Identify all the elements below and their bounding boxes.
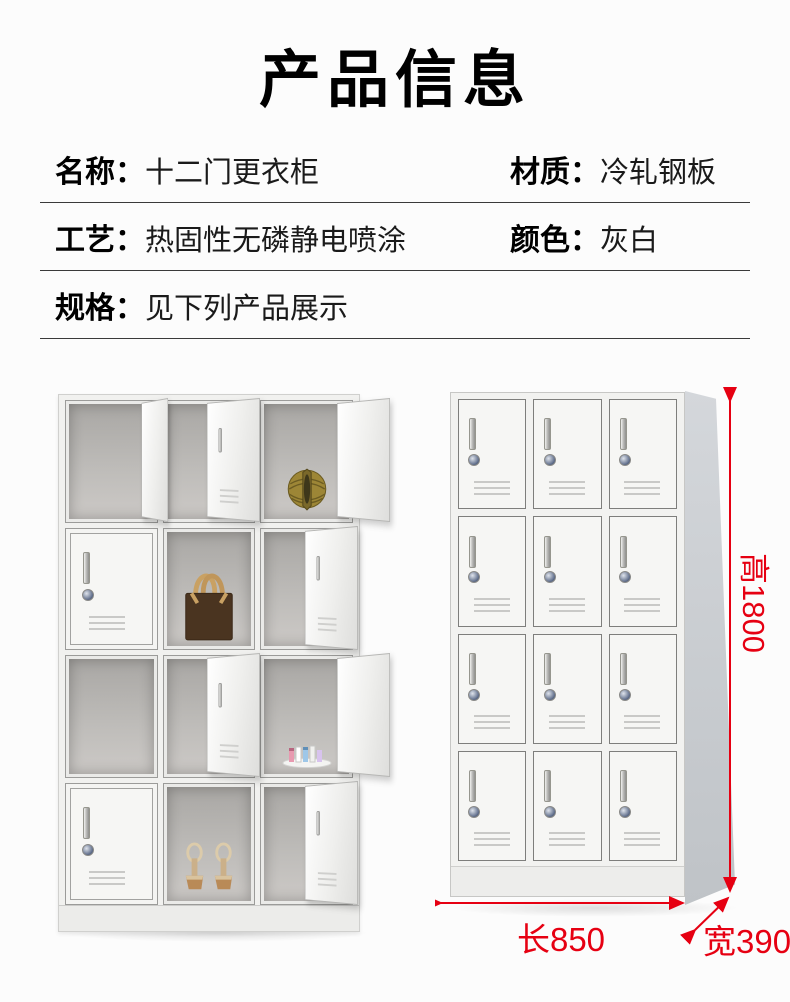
dimension-arrows: [435, 385, 790, 985]
door-lock-icon: [82, 844, 94, 856]
door-handle-icon: [316, 810, 319, 835]
door-vents: [89, 616, 125, 634]
locker-door: [70, 788, 153, 901]
product-photo-right-closed-locker: 高1800 长850 宽390: [435, 385, 790, 985]
spec-label-name: 名称：: [55, 147, 145, 191]
open-door-icon: [305, 781, 358, 905]
door-vents: [318, 617, 337, 632]
spec-label-process: 工艺：: [55, 215, 145, 259]
spec-value-color: 灰白: [600, 217, 658, 259]
spec-row: 规格： 见下列产品展示: [40, 271, 750, 339]
locker-cell-open: [163, 655, 256, 778]
spec-label-material: 材质：: [510, 147, 600, 191]
spec-value-name: 十二门更衣柜: [145, 149, 319, 191]
handbag-icon: [178, 568, 240, 642]
open-door-icon: [207, 398, 260, 522]
dimension-label-width: 宽390: [703, 915, 790, 963]
spec-label-color: 颜色：: [510, 215, 600, 259]
door-handle-icon: [316, 555, 319, 580]
locker-cell-open: [163, 783, 256, 906]
door-handle-icon: [83, 807, 90, 839]
door-handle-icon: [218, 428, 221, 453]
spec-value-process: 热固性无磷静电喷涂: [145, 217, 406, 259]
open-door-icon: [207, 653, 260, 777]
page-title: 产品信息: [0, 34, 790, 127]
spec-value-size: 见下列产品展示: [145, 285, 348, 327]
dimension-label-height: 高1800: [734, 553, 779, 653]
locker-cell-open: [65, 655, 158, 778]
door-vents: [220, 490, 239, 505]
locker-cell-closed: [65, 783, 158, 906]
door-handle-icon: [218, 683, 221, 708]
locker-base: [59, 905, 359, 931]
open-door-icon: [141, 398, 167, 522]
spec-cell-name: 名称： 十二门更衣柜: [55, 147, 510, 191]
locker-cell-closed: [65, 528, 158, 651]
spec-value-material: 冷轧钢板: [600, 149, 716, 191]
open-door-icon: [337, 653, 390, 777]
locker-door: [70, 533, 153, 646]
spec-cell-material: 材质： 冷轧钢板: [510, 147, 750, 191]
spec-row: 名称： 十二门更衣柜 材质： 冷轧钢板: [40, 135, 750, 203]
locker-cell-open: [260, 400, 353, 523]
locker-cell-open: [260, 528, 353, 651]
spec-label-size: 规格：: [55, 283, 145, 327]
locker-cell-open: [163, 528, 256, 651]
locker-cell-open: [163, 400, 256, 523]
locker-cell-open: [260, 655, 353, 778]
sandals-icon: [178, 841, 240, 897]
spec-cell-process: 工艺： 热固性无磷静电喷涂: [55, 215, 510, 259]
locker-body: [58, 394, 360, 932]
product-display: 高1800 长850 宽390: [0, 385, 790, 985]
product-photo-left-open-locker: [40, 385, 410, 970]
door-vents: [89, 871, 125, 889]
door-handle-icon: [83, 552, 90, 584]
locker-grid: [65, 400, 353, 905]
spec-cell-size: 规格： 见下列产品展示: [55, 283, 510, 327]
door-vents: [318, 872, 337, 887]
gold-ornament-icon: [282, 464, 332, 514]
dimension-label-length: 长850: [435, 913, 687, 961]
door-vents: [220, 745, 239, 760]
door-lock-icon: [82, 589, 94, 601]
cosmetics-icon: [280, 739, 334, 769]
spec-cell-color: 颜色： 灰白: [510, 215, 750, 259]
locker-interior: [66, 656, 157, 777]
spec-table: 名称： 十二门更衣柜 材质： 冷轧钢板 工艺： 热固性无磷静电喷涂 颜色： 灰白…: [40, 135, 750, 339]
open-door-icon: [337, 398, 390, 522]
spec-row: 工艺： 热固性无磷静电喷涂 颜色： 灰白: [40, 203, 750, 271]
open-door-icon: [305, 526, 358, 650]
locker-cell-open: [65, 400, 158, 523]
locker-cell-open: [260, 783, 353, 906]
